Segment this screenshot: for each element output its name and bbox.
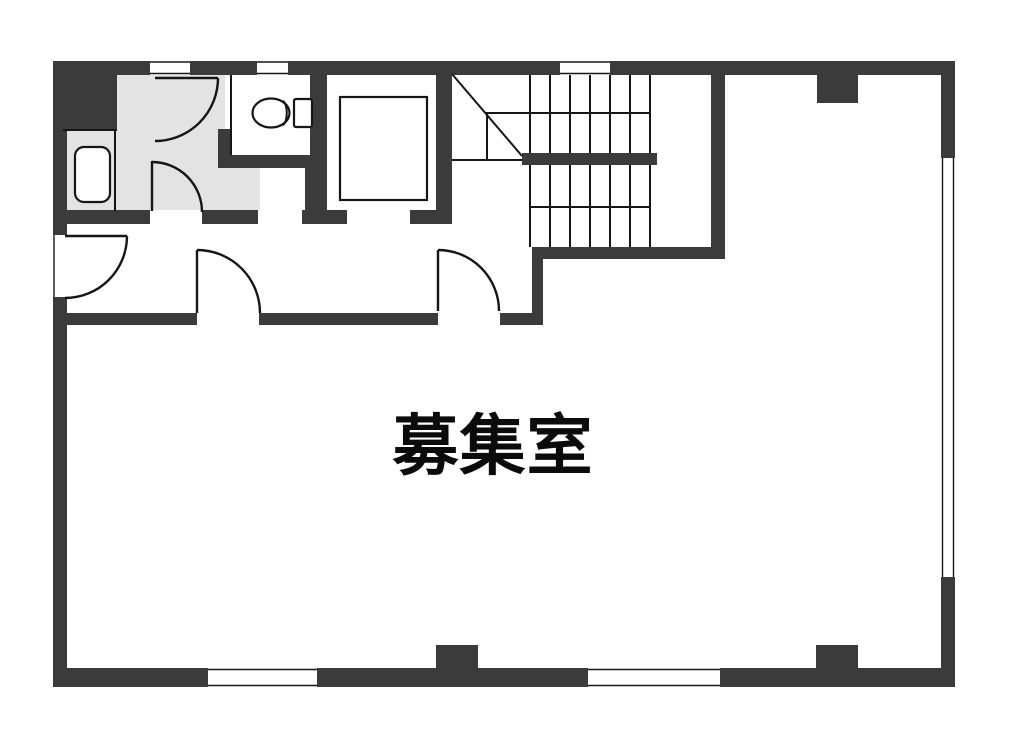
window-icon (588, 668, 720, 687)
stairs-bottom-wall (532, 247, 725, 259)
elevator-right-wall (436, 68, 452, 224)
washroom-floor (218, 168, 260, 211)
vestibule-door-opening (258, 210, 302, 224)
outer-wall-bottom (53, 668, 955, 687)
elevator-shaft-icon (340, 97, 427, 200)
toilet-washroom-divider (218, 129, 232, 155)
toilet-tank (294, 99, 312, 127)
toilet-bottom-wall (218, 155, 310, 168)
left-wall-door-opening (53, 235, 67, 297)
wash-basin (75, 147, 110, 202)
stair-landing-wall (522, 153, 657, 165)
elevator-door-opening (347, 210, 410, 224)
room-label: 募集室 (392, 408, 594, 485)
column-bottom-left (436, 645, 478, 668)
toilet-icon (253, 99, 313, 128)
column-top (817, 75, 858, 103)
corridor-door-opening-right (438, 313, 500, 325)
window-icon (208, 668, 317, 687)
washroom-floor (117, 75, 225, 129)
window-icon (257, 61, 288, 75)
elevator-car (340, 97, 427, 200)
window-icon (560, 61, 610, 75)
floor-plan-svg: 募集室 (0, 0, 1013, 746)
wash-basin-icon (75, 147, 110, 202)
window-icon (941, 158, 955, 577)
corridor-door-opening-left (197, 313, 259, 325)
elevator-left-wall (310, 75, 327, 211)
window-icon (150, 61, 190, 75)
floor-plan-page: 募集室 (0, 0, 1013, 746)
column-bottom-right (816, 645, 858, 668)
washroom-door-opening (150, 210, 202, 224)
corner-wall-mass (53, 61, 117, 129)
stair-right-wall (711, 73, 725, 259)
outer-wall-left (53, 61, 67, 687)
